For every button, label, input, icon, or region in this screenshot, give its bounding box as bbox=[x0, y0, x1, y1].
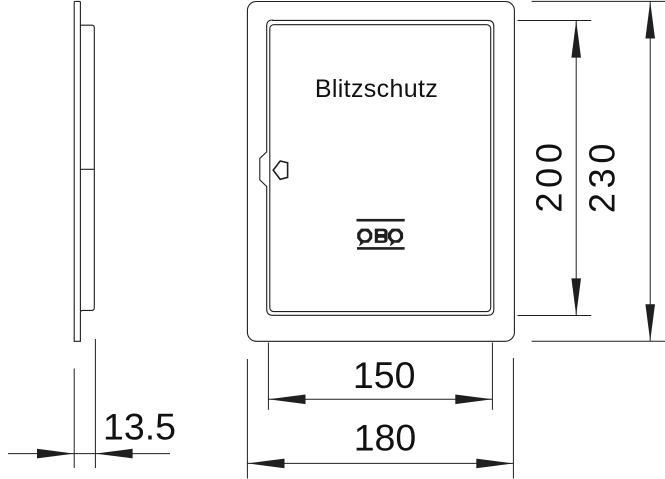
svg-text:230: 230 bbox=[582, 139, 623, 213]
svg-text:150: 150 bbox=[353, 354, 416, 396]
svg-text:13.5: 13.5 bbox=[103, 405, 176, 447]
svg-text:Blitzschutz: Blitzschutz bbox=[315, 75, 438, 103]
svg-text:180: 180 bbox=[354, 417, 417, 459]
svg-text:200: 200 bbox=[529, 138, 570, 212]
